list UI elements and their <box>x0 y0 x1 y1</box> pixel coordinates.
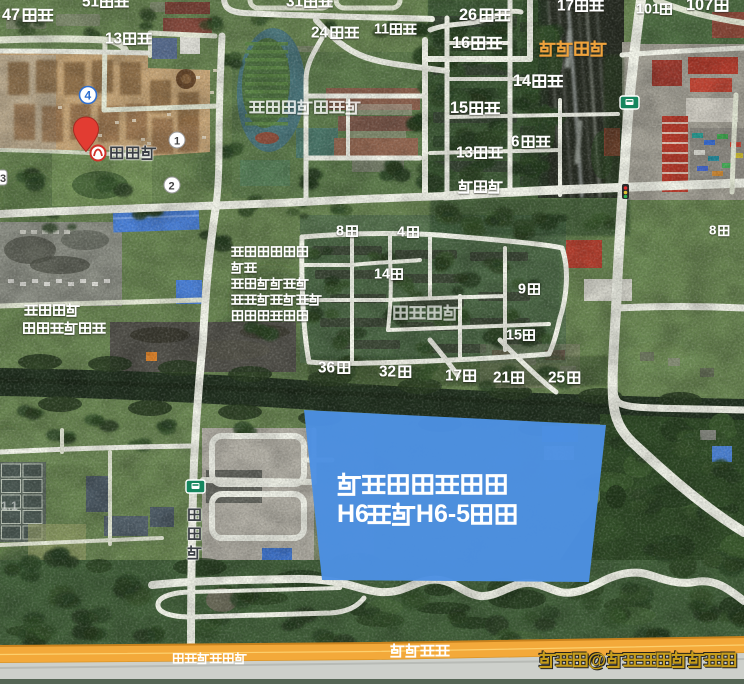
svg-text:14: 14 <box>374 267 390 283</box>
svg-text:47: 47 <box>2 6 20 24</box>
svg-text:2: 2 <box>169 181 175 193</box>
svg-text:36: 36 <box>318 359 335 376</box>
svg-text:16: 16 <box>452 34 470 52</box>
svg-text:107: 107 <box>686 0 713 14</box>
svg-text:9: 9 <box>518 282 526 298</box>
svg-text:6: 6 <box>511 133 520 150</box>
svg-text:101: 101 <box>636 2 660 18</box>
svg-text:H6-5: H6-5 <box>416 500 470 528</box>
svg-text:32: 32 <box>379 363 396 380</box>
svg-text:11: 11 <box>374 22 389 38</box>
svg-text:1: 1 <box>174 136 180 148</box>
svg-text:4: 4 <box>85 89 92 103</box>
svg-text:51: 51 <box>82 0 100 10</box>
svg-text:8: 8 <box>709 223 716 238</box>
svg-text:@: @ <box>588 651 607 672</box>
svg-text:15: 15 <box>450 99 468 117</box>
svg-text:15: 15 <box>506 328 522 344</box>
svg-text:21: 21 <box>493 369 511 386</box>
svg-text:13: 13 <box>456 144 473 161</box>
svg-text:14: 14 <box>513 72 531 90</box>
svg-text:24: 24 <box>311 24 329 41</box>
svg-text:25: 25 <box>548 369 566 386</box>
svg-text:1.1: 1.1 <box>1 499 18 513</box>
svg-text:4: 4 <box>397 225 405 241</box>
svg-text:8: 8 <box>336 224 344 240</box>
svg-text:31: 31 <box>286 0 304 10</box>
svg-text:3: 3 <box>0 173 6 185</box>
svg-text:26: 26 <box>459 6 477 24</box>
svg-text:17: 17 <box>445 367 462 384</box>
svg-text:17: 17 <box>557 0 574 14</box>
svg-text:13: 13 <box>105 30 122 47</box>
svg-text:H6: H6 <box>337 500 369 528</box>
